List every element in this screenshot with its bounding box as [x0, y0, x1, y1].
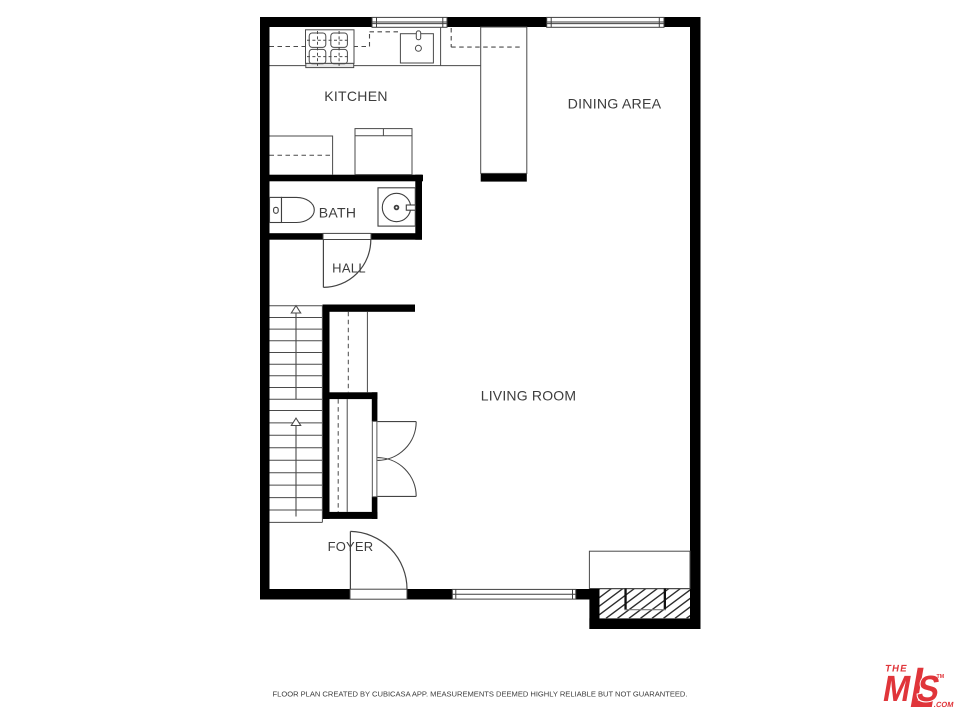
svg-text:KITCHEN: KITCHEN	[324, 88, 388, 104]
svg-text:LIVING ROOM: LIVING ROOM	[481, 387, 577, 403]
svg-text:.COM: .COM	[933, 700, 954, 709]
svg-text:FOYER: FOYER	[328, 539, 374, 554]
svg-text:HALL: HALL	[332, 260, 366, 275]
svg-text:FLOOR PLAN CREATED BY CUBICASA: FLOOR PLAN CREATED BY CUBICASA APP. MEAS…	[273, 690, 688, 699]
svg-text:TM: TM	[937, 674, 945, 680]
svg-text:BATH: BATH	[319, 205, 357, 221]
svg-text:DINING AREA: DINING AREA	[568, 97, 662, 113]
